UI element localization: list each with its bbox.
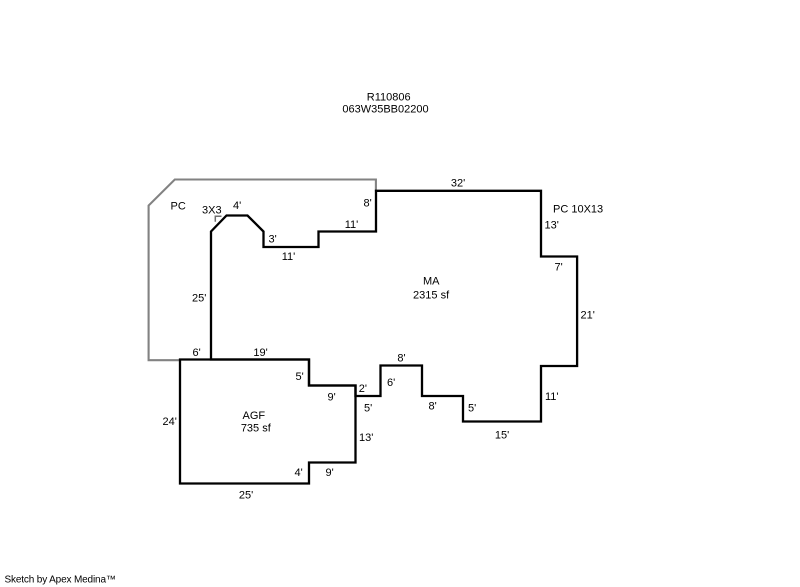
svg-text:11': 11' [545, 391, 559, 403]
svg-text:8': 8' [429, 400, 437, 412]
svg-text:13': 13' [359, 432, 373, 444]
svg-text:4': 4' [233, 200, 241, 212]
svg-text:2315 sf: 2315 sf [413, 290, 450, 302]
svg-text:5': 5' [468, 403, 476, 415]
svg-text:PC: PC [171, 201, 186, 213]
svg-text:AGF: AGF [242, 410, 265, 422]
svg-text:R110806: R110806 [367, 92, 411, 104]
svg-text:6': 6' [387, 377, 395, 389]
svg-text:11': 11' [345, 219, 359, 231]
svg-text:5': 5' [296, 371, 304, 383]
svg-text:7': 7' [555, 261, 563, 273]
svg-text:8': 8' [364, 198, 372, 210]
svg-text:9': 9' [328, 392, 336, 404]
svg-text:4': 4' [295, 467, 303, 479]
svg-text:21': 21' [581, 309, 595, 321]
svg-text:063W35BB02200: 063W35BB02200 [342, 104, 428, 116]
svg-text:3': 3' [269, 233, 277, 245]
svg-text:Sketch by Apex Medina™: Sketch by Apex Medina™ [5, 574, 116, 585]
svg-text:3X3: 3X3 [202, 204, 222, 216]
svg-text:8': 8' [397, 353, 405, 365]
svg-text:2': 2' [359, 383, 367, 395]
svg-text:24': 24' [163, 416, 177, 428]
svg-text:MA: MA [423, 276, 440, 288]
svg-text:32': 32' [451, 178, 465, 190]
svg-text:13': 13' [545, 219, 559, 231]
svg-text:11': 11' [282, 251, 296, 263]
svg-text:735 sf: 735 sf [241, 423, 272, 435]
svg-text:25': 25' [239, 489, 253, 501]
svg-text:PC 10X13: PC 10X13 [553, 203, 603, 215]
svg-text:19': 19' [253, 347, 267, 359]
svg-text:6': 6' [193, 347, 201, 359]
svg-text:15': 15' [495, 430, 509, 442]
svg-text:9': 9' [326, 467, 334, 479]
svg-text:5': 5' [364, 403, 372, 415]
svg-text:25': 25' [192, 293, 206, 305]
